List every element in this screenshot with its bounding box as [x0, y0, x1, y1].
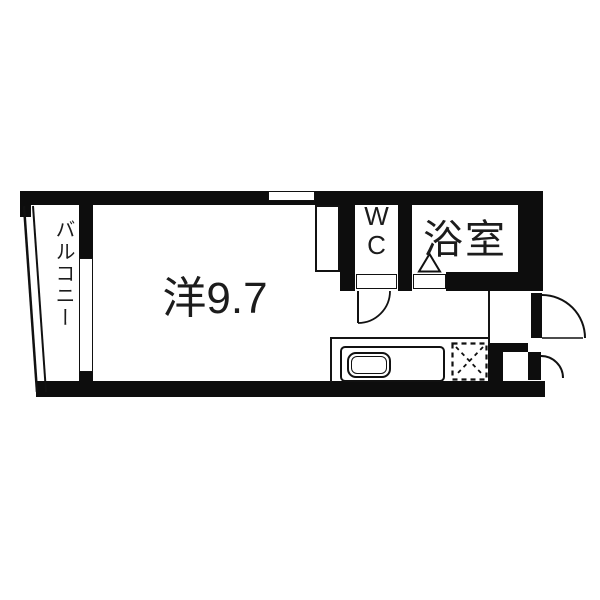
stove-hatch-diagonal-2: [456, 347, 483, 375]
bath-door-panel: [413, 274, 446, 289]
wc-label: W C: [355, 202, 398, 260]
wall-wc-left: [340, 205, 355, 275]
stove-hatch-box: [453, 344, 487, 380]
balcony-label: バルコニー: [49, 219, 78, 341]
kitchen-boundary-line-v: [330, 337, 332, 382]
wall-entrance-band: [488, 343, 528, 352]
kitchen-boundary-line-h: [330, 337, 489, 339]
meter-box-door-swing-arc: [541, 356, 563, 378]
entrance-area: [490, 291, 528, 343]
meter-box-door-leaf: [528, 352, 541, 380]
floor-plan: バルコニー 洋9.7 W C 浴室: [0, 0, 600, 600]
entrance-cabinet: [503, 352, 528, 380]
main-room-label: 洋9.7: [150, 262, 280, 326]
wall-wc-bath-divider: [398, 205, 412, 275]
closet-box: [315, 205, 340, 272]
balcony-sliding-window: [79, 258, 93, 372]
stove-hatch-diagonal-1: [456, 347, 483, 375]
bathroom-label: 浴室: [412, 207, 518, 265]
entrance-step-line: [488, 291, 490, 344]
wall-balcony-upper: [79, 205, 93, 258]
front-door-leaf: [531, 293, 542, 338]
front-door-swing-arc: [542, 295, 585, 338]
kitchen-sink-basin: [351, 356, 387, 374]
wc-door-panel: [356, 274, 397, 289]
wall-bottom: [36, 381, 545, 397]
wall-entrance-left-block: [488, 352, 503, 381]
wall-top-left-stub: [20, 205, 31, 217]
window-top: [268, 191, 315, 201]
wc-door-swing-arc: [358, 291, 390, 323]
wall-balcony-lower: [79, 372, 93, 381]
